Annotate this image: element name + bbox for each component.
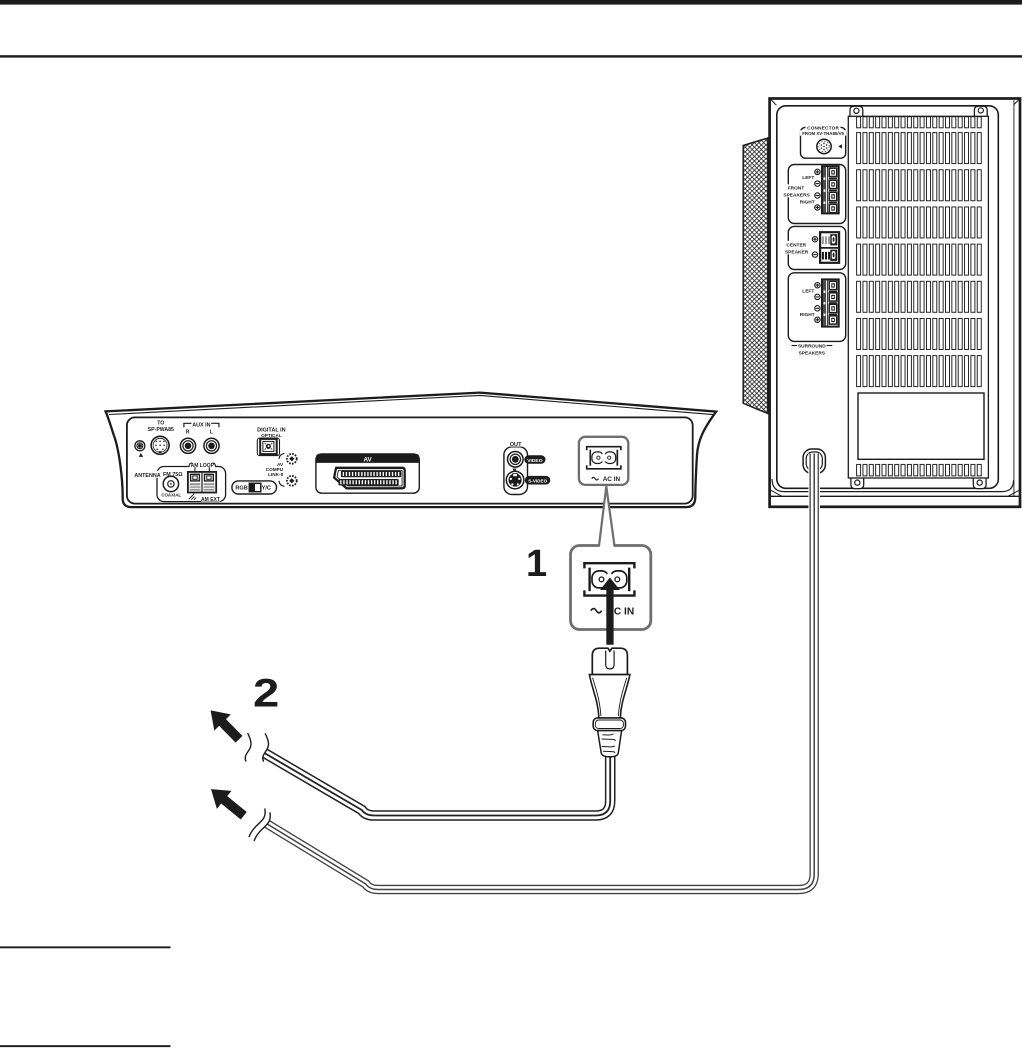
svg-text:SPEAKERS: SPEAKERS xyxy=(799,351,826,357)
svg-text:AC IN: AC IN xyxy=(603,476,621,483)
svg-text:CONNECTOR: CONNECTOR xyxy=(807,125,839,130)
svg-text:COAXIAL: COAXIAL xyxy=(161,493,181,498)
svg-text:R: R xyxy=(186,430,190,436)
svg-text:AV: AV xyxy=(363,456,372,463)
svg-text:RGB: RGB xyxy=(235,486,247,492)
svg-text:Y/C: Y/C xyxy=(262,486,271,492)
svg-text:SPEAKERS: SPEAKERS xyxy=(783,192,810,198)
svg-text:SPEAKER: SPEAKER xyxy=(785,250,809,256)
svg-text:1: 1 xyxy=(526,543,547,585)
svg-text:LEFT: LEFT xyxy=(802,289,814,295)
svg-text:S-VIDEO: S-VIDEO xyxy=(528,478,547,483)
svg-text:SURROUND: SURROUND xyxy=(798,343,826,349)
svg-text:VIDEO: VIDEO xyxy=(527,458,542,464)
svg-text:FROM XV-THA85/V5: FROM XV-THA85/V5 xyxy=(802,131,844,136)
svg-text:LEFT: LEFT xyxy=(802,175,814,181)
svg-text:OPTICAL: OPTICAL xyxy=(261,433,282,438)
svg-text:SP-PWA85: SP-PWA85 xyxy=(148,427,174,433)
svg-text:AM EXT: AM EXT xyxy=(201,497,220,503)
svg-text:ANTENNA: ANTENNA xyxy=(134,473,160,479)
svg-text:TO: TO xyxy=(157,421,164,427)
svg-text:AUX IN: AUX IN xyxy=(192,422,210,428)
svg-text:FRONT: FRONT xyxy=(788,186,805,192)
svg-text:RIGHT: RIGHT xyxy=(800,200,815,206)
svg-text:2: 2 xyxy=(253,671,279,716)
svg-text:AM LOOP: AM LOOP xyxy=(191,463,215,469)
svg-text:CENTER: CENTER xyxy=(786,242,806,248)
svg-text:OUT: OUT xyxy=(510,442,522,448)
svg-text:LINK-II: LINK-II xyxy=(268,472,283,477)
svg-text:RIGHT: RIGHT xyxy=(800,312,815,318)
